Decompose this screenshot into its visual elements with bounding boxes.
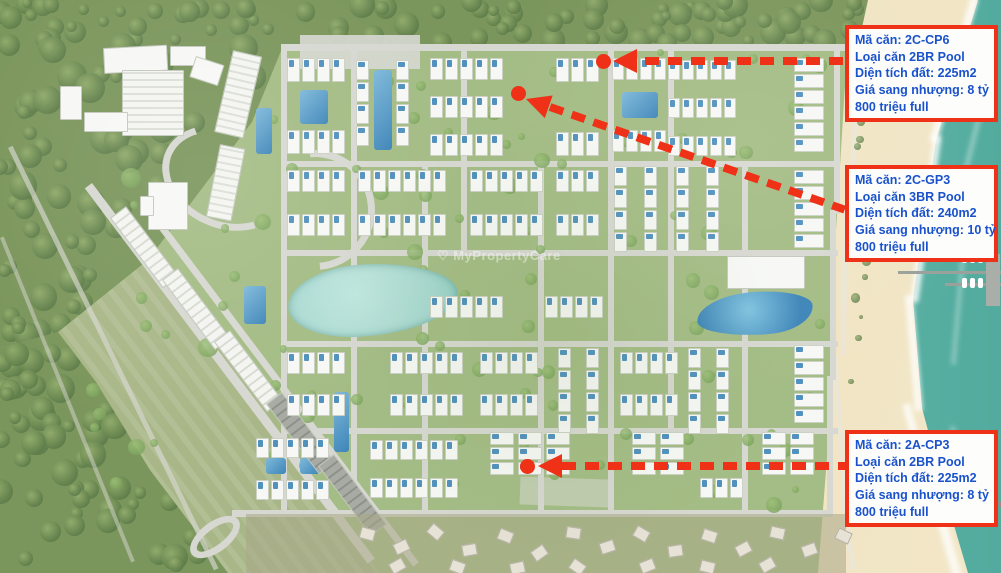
villa-cluster <box>790 432 791 433</box>
villa <box>794 345 824 359</box>
villa-cluster <box>390 394 391 395</box>
villa <box>571 170 584 192</box>
village-house <box>509 561 526 573</box>
villa-pool <box>712 138 717 145</box>
villa <box>660 432 684 445</box>
villa-pool <box>646 234 653 239</box>
villa <box>716 414 729 434</box>
villa <box>571 214 584 236</box>
villa <box>556 170 569 192</box>
villa <box>490 296 503 318</box>
villa-pool <box>708 212 715 217</box>
villa-pool <box>517 216 522 223</box>
unit-code-line: Mã căn: 2A-CP3 <box>855 437 988 454</box>
tree <box>435 341 445 351</box>
villa-pool <box>717 480 722 487</box>
villa <box>586 132 599 156</box>
villa-pool <box>492 136 497 143</box>
pool <box>266 458 286 474</box>
villa-cluster <box>370 440 371 441</box>
villa-pool <box>304 216 309 223</box>
villa-pool <box>358 106 365 111</box>
villa <box>302 214 315 236</box>
tree <box>168 556 184 572</box>
villa <box>620 394 633 416</box>
villa-pool <box>387 480 392 487</box>
villa-pool <box>334 172 339 179</box>
tree <box>496 22 509 35</box>
villa-pool <box>678 212 685 217</box>
villa <box>418 170 431 192</box>
tree <box>851 293 860 302</box>
villa-cluster <box>518 432 519 433</box>
villa <box>435 394 448 416</box>
villa-pool <box>796 124 803 129</box>
villa-pool <box>407 354 412 361</box>
villa <box>396 60 409 80</box>
villa-pool <box>462 136 467 143</box>
unit-marker-dot-2C-CP6 <box>596 54 611 69</box>
hotel-building <box>84 112 128 132</box>
tree <box>686 273 700 287</box>
villa-pool <box>708 234 715 239</box>
tree <box>47 184 71 208</box>
unit-marker-dot-2A-CP3 <box>520 459 535 474</box>
villa <box>485 214 498 236</box>
villa-cluster <box>556 58 557 59</box>
pool <box>256 108 272 154</box>
pool <box>622 92 658 118</box>
villa-pool <box>512 396 517 403</box>
villa-cluster <box>358 170 359 171</box>
villa-cluster <box>356 60 357 61</box>
villa-pool <box>258 440 263 447</box>
villa-cluster <box>556 132 557 133</box>
villa-pool <box>334 132 339 139</box>
tree <box>506 0 521 14</box>
villa-pool <box>432 442 437 449</box>
villa-cluster <box>632 432 633 433</box>
villa-cluster <box>430 296 431 297</box>
villa <box>490 134 503 156</box>
villa-pool <box>726 100 731 107</box>
villa <box>790 447 814 460</box>
villa <box>676 210 689 230</box>
tree <box>609 18 625 34</box>
villa-pool <box>646 212 653 217</box>
villa-pool <box>616 190 623 195</box>
villa <box>317 394 330 416</box>
villa-cluster <box>490 432 491 433</box>
villa <box>317 352 330 374</box>
tree <box>502 140 510 148</box>
villa <box>688 414 701 434</box>
villa-pool <box>560 416 567 421</box>
tree <box>76 235 96 255</box>
villa-pool <box>398 128 405 133</box>
villa <box>490 462 514 475</box>
villa-cluster <box>546 432 547 433</box>
villa-pool <box>492 449 499 454</box>
villa <box>396 82 409 102</box>
villa <box>794 90 824 104</box>
villa <box>586 170 599 192</box>
villa <box>644 232 657 252</box>
villa-cluster <box>545 296 546 297</box>
villa-pool <box>702 480 707 487</box>
villa-pool <box>560 394 567 399</box>
villa-pool <box>796 172 803 177</box>
villa-pool <box>588 394 595 399</box>
villa <box>794 409 824 423</box>
villa-pool <box>372 442 377 449</box>
watermark-center: ♡ MyPropertyCare <box>437 248 561 264</box>
villa-pool <box>656 132 661 139</box>
villa <box>445 296 458 318</box>
parking-pad <box>520 476 611 507</box>
villa-pool <box>764 449 771 454</box>
villa-cluster <box>794 170 795 171</box>
villa-pool <box>670 100 675 107</box>
villa <box>373 214 386 236</box>
villa <box>317 130 330 154</box>
villa-pool <box>487 172 492 179</box>
villa <box>301 438 314 458</box>
villa-pool <box>319 60 324 67</box>
villa-pool <box>588 60 593 67</box>
villa <box>696 98 708 118</box>
villa <box>668 98 680 118</box>
villa-pool <box>796 140 803 145</box>
village-house <box>699 559 716 573</box>
villa-pool <box>573 172 578 179</box>
villa-pool <box>558 216 563 223</box>
villa <box>430 440 443 460</box>
villa <box>358 214 371 236</box>
tree <box>668 2 692 26</box>
tree <box>33 86 62 115</box>
villa <box>418 214 431 236</box>
villa-pool <box>634 449 641 454</box>
villa-pool <box>447 136 452 143</box>
villa <box>460 296 473 318</box>
villa-pool <box>477 60 482 67</box>
villa-pool <box>462 60 467 67</box>
tree <box>557 159 567 169</box>
villa <box>356 126 369 146</box>
villa-pool <box>684 138 689 145</box>
villa-pool <box>492 98 497 105</box>
villa <box>287 58 300 82</box>
villa <box>332 58 345 82</box>
villa-cluster <box>430 58 431 59</box>
villa-pool <box>334 60 339 67</box>
tree <box>583 9 604 30</box>
villa <box>632 432 656 445</box>
villa <box>706 188 719 208</box>
villa <box>696 136 708 156</box>
villa-pool <box>520 434 527 439</box>
road <box>608 44 614 516</box>
villa <box>586 414 599 434</box>
villa-cluster <box>660 432 661 433</box>
villa-cluster <box>480 394 481 395</box>
tree <box>40 37 66 63</box>
unit-type-line: Loại căn 3BR Pool <box>855 189 988 206</box>
villa-pool <box>637 396 642 403</box>
villa <box>790 432 814 445</box>
villa-pool <box>288 482 293 489</box>
unit-area-line: Diện tích đất: 225m2 <box>855 470 988 487</box>
villa <box>586 392 599 412</box>
tree <box>66 21 77 32</box>
villa <box>716 370 729 390</box>
villa <box>286 438 299 458</box>
tree <box>407 244 423 260</box>
villa <box>635 352 648 374</box>
villa-pool <box>796 347 803 352</box>
villa-pool <box>573 134 578 141</box>
villa-pool <box>690 350 697 355</box>
villa-pool <box>273 440 278 447</box>
villa-pool <box>390 216 395 223</box>
villa-pool <box>303 440 308 447</box>
villa <box>420 352 433 374</box>
villa-pool <box>319 396 324 403</box>
tree <box>40 521 61 542</box>
villa <box>688 348 701 368</box>
villa-pool <box>588 416 595 421</box>
villa <box>794 234 824 248</box>
tree <box>548 400 559 411</box>
villa-cluster <box>370 478 371 479</box>
villa-pool <box>796 108 803 113</box>
villa <box>644 210 657 230</box>
villa-pool <box>398 84 405 89</box>
villa <box>400 440 413 460</box>
villa-cluster <box>794 345 795 346</box>
clubhouse <box>148 182 188 230</box>
villa <box>490 447 514 460</box>
villa <box>710 136 722 156</box>
villa <box>706 232 719 252</box>
tree <box>0 479 13 505</box>
villa <box>556 132 569 156</box>
villa-pool <box>289 132 294 139</box>
tree <box>518 133 525 140</box>
villa-pool <box>684 100 689 107</box>
villa-cluster <box>287 214 288 215</box>
tree <box>0 6 22 29</box>
tree <box>777 10 801 34</box>
villa <box>632 447 656 460</box>
tree <box>229 16 248 35</box>
villa <box>403 214 416 236</box>
villa <box>475 134 488 156</box>
villa <box>794 393 824 407</box>
villa <box>302 352 315 374</box>
villa-pool <box>532 172 537 179</box>
villa-pool <box>588 350 595 355</box>
tree <box>65 234 79 248</box>
tree <box>757 13 772 28</box>
villa-cluster <box>556 170 557 171</box>
villa <box>614 232 627 252</box>
villa-pool <box>588 172 593 179</box>
tree <box>534 153 549 168</box>
villa <box>716 392 729 412</box>
villa <box>794 361 824 375</box>
villa-pool <box>622 396 627 403</box>
tree <box>229 271 240 282</box>
villa-pool <box>547 298 552 305</box>
tree <box>657 49 664 56</box>
unit-price-line-2: 800 triệu full <box>855 99 988 116</box>
villa <box>332 170 345 192</box>
villa <box>316 480 329 500</box>
villa <box>794 74 824 88</box>
villa-pool <box>435 216 440 223</box>
villa-pool <box>560 350 567 355</box>
villa-pool <box>588 216 593 223</box>
tree <box>128 17 147 36</box>
villa-pool <box>392 396 397 403</box>
tree <box>0 264 11 277</box>
villa <box>490 96 503 118</box>
tree <box>349 0 375 18</box>
villa-cluster <box>620 394 621 395</box>
villa-cluster <box>396 60 397 61</box>
villa <box>388 214 401 236</box>
tree <box>134 486 147 499</box>
villa-pool <box>417 480 422 487</box>
villa-cluster <box>620 352 621 353</box>
villa-cluster <box>668 136 669 137</box>
villa-pool <box>796 363 803 368</box>
villa-pool <box>334 396 339 403</box>
villa-pool <box>517 172 522 179</box>
villa-pool <box>637 354 642 361</box>
villa-cluster <box>614 166 615 167</box>
unit-marker-dot-2C-GP3 <box>511 86 526 101</box>
villa-pool <box>573 216 578 223</box>
villa <box>396 104 409 124</box>
tree <box>14 198 35 219</box>
villa <box>435 352 448 374</box>
villa <box>403 170 416 192</box>
villa-pool <box>258 482 263 489</box>
tree <box>702 370 715 383</box>
villa-pool <box>796 76 803 81</box>
villa-pool <box>387 442 392 449</box>
villa-pool <box>273 482 278 489</box>
villa-cluster <box>287 58 288 59</box>
villa-pool <box>532 216 537 223</box>
tree <box>140 320 152 332</box>
villa-pool <box>432 136 437 143</box>
villa <box>370 440 383 460</box>
tree <box>809 0 833 12</box>
villa-pool <box>573 60 578 67</box>
tree <box>128 439 144 455</box>
village-ground <box>246 514 846 573</box>
villa <box>388 170 401 192</box>
villa <box>405 394 418 416</box>
villa <box>332 130 345 154</box>
tree <box>856 136 863 143</box>
villa <box>302 170 315 192</box>
villa <box>433 170 446 192</box>
villa <box>445 96 458 118</box>
villa-pool <box>558 60 563 67</box>
villa-pool <box>792 449 799 454</box>
villa-pool <box>492 464 499 469</box>
villa <box>530 214 543 236</box>
tree <box>513 24 532 43</box>
tree <box>701 7 716 22</box>
villa-pool <box>492 434 499 439</box>
villa-pool <box>432 98 437 105</box>
unit-info-card-2C-CP6: Mã căn: 2C-CP6 Loại căn 2BR Pool Diện tí… <box>845 25 998 122</box>
villa <box>590 296 603 318</box>
villa-pool <box>616 212 623 217</box>
tree <box>0 387 14 401</box>
villa <box>710 98 722 118</box>
tree <box>78 4 89 15</box>
villa-cluster <box>287 130 288 131</box>
villa <box>635 394 648 416</box>
arrow-icon-unit-2C-CP6 <box>613 49 637 73</box>
villa-pool <box>718 416 725 421</box>
unit-type-line: Loại căn 2BR Pool <box>855 454 988 471</box>
villa <box>430 96 443 118</box>
tree <box>30 283 57 310</box>
villa <box>510 394 523 416</box>
villa <box>614 210 627 230</box>
villa-pool <box>678 190 685 195</box>
villa <box>556 214 569 236</box>
villa <box>558 392 571 412</box>
villa-cluster <box>256 480 257 481</box>
villa <box>480 394 493 416</box>
villa <box>558 348 571 368</box>
villa-pool <box>646 190 653 195</box>
villa-pool <box>616 168 623 173</box>
villa <box>460 96 473 118</box>
villa-pool <box>622 354 627 361</box>
villa <box>356 60 369 80</box>
villa <box>730 478 743 498</box>
villa-pool <box>796 379 803 384</box>
tree <box>375 1 389 15</box>
villa <box>430 58 443 80</box>
villa-cluster <box>256 438 257 439</box>
villa <box>525 394 538 416</box>
villa <box>317 214 330 236</box>
villa <box>470 214 483 236</box>
villa <box>794 377 824 391</box>
watermark-center-text: MyPropertyCare <box>453 248 560 263</box>
villa <box>794 170 824 184</box>
pool <box>244 286 266 324</box>
tree <box>179 1 199 21</box>
villa <box>287 394 300 416</box>
villa-pool <box>527 354 532 361</box>
tree <box>296 2 316 22</box>
tree <box>221 224 230 233</box>
villa <box>302 394 315 416</box>
villa <box>256 438 269 458</box>
